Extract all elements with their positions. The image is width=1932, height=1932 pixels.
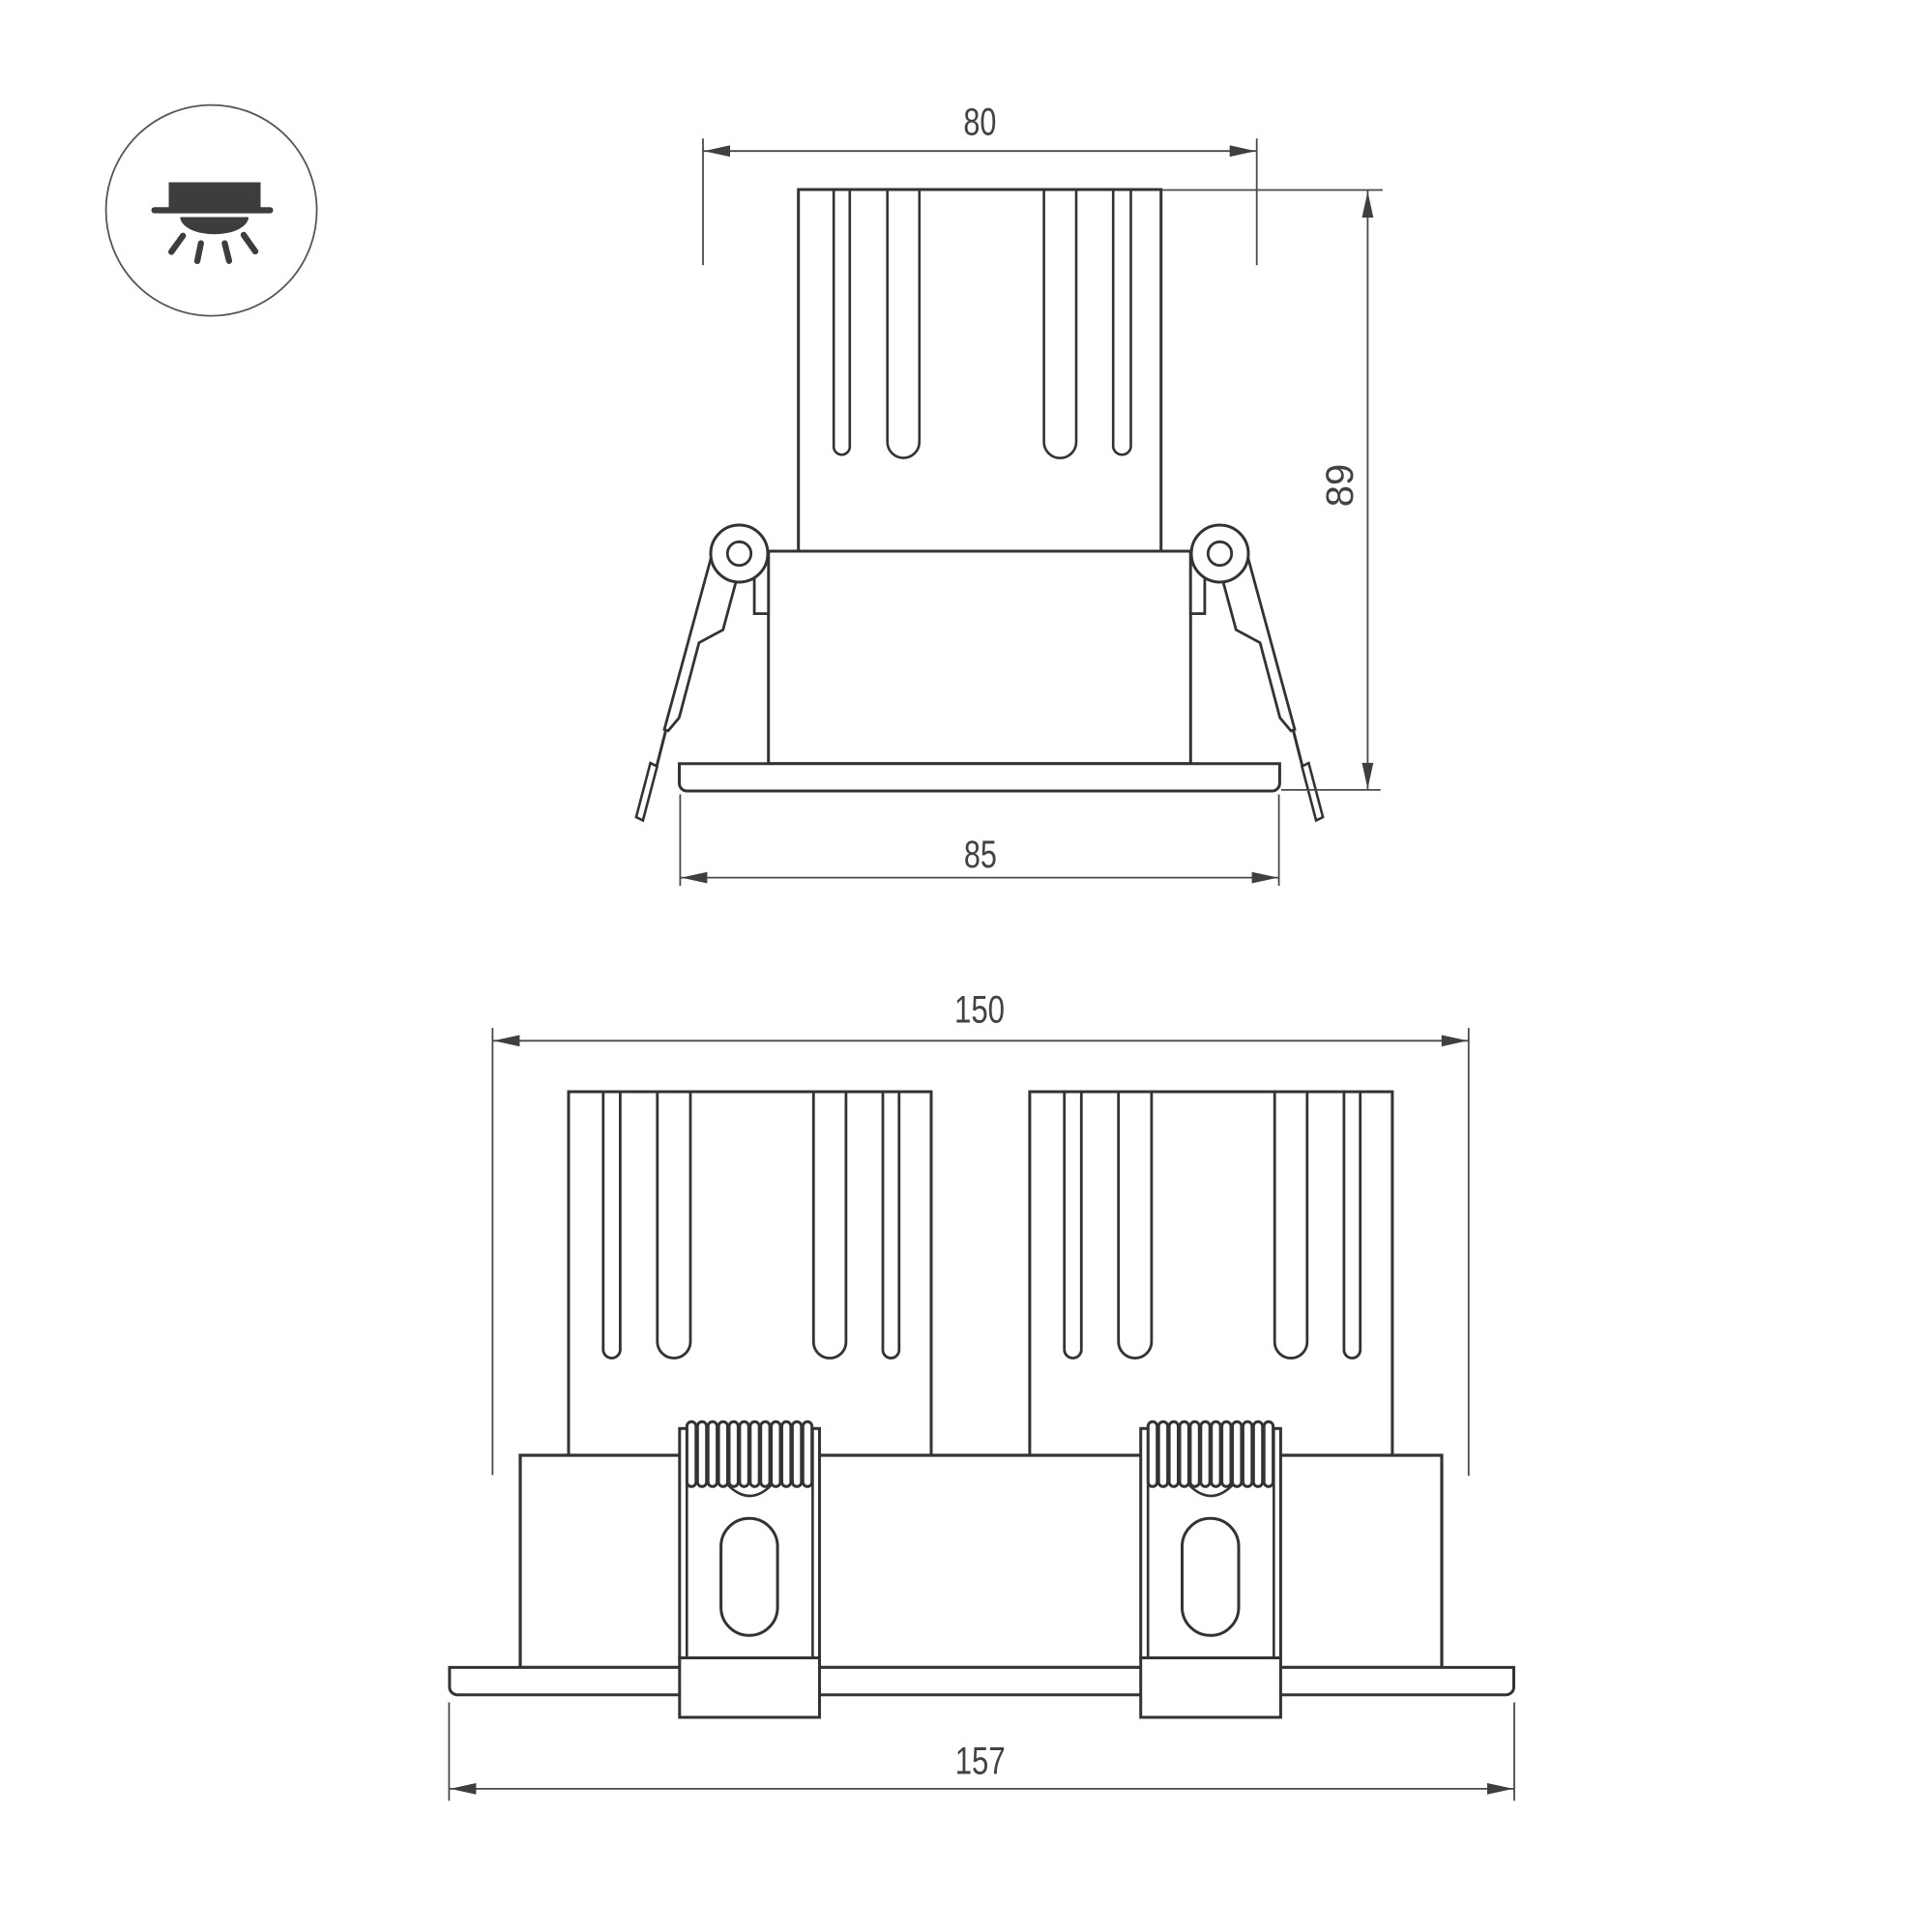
svg-text:150: 150 — [954, 989, 1005, 1032]
svg-text:80: 80 — [963, 102, 996, 144]
svg-text:89: 89 — [1319, 464, 1361, 508]
svg-text:157: 157 — [955, 1741, 1006, 1783]
svg-text:85: 85 — [964, 834, 997, 876]
